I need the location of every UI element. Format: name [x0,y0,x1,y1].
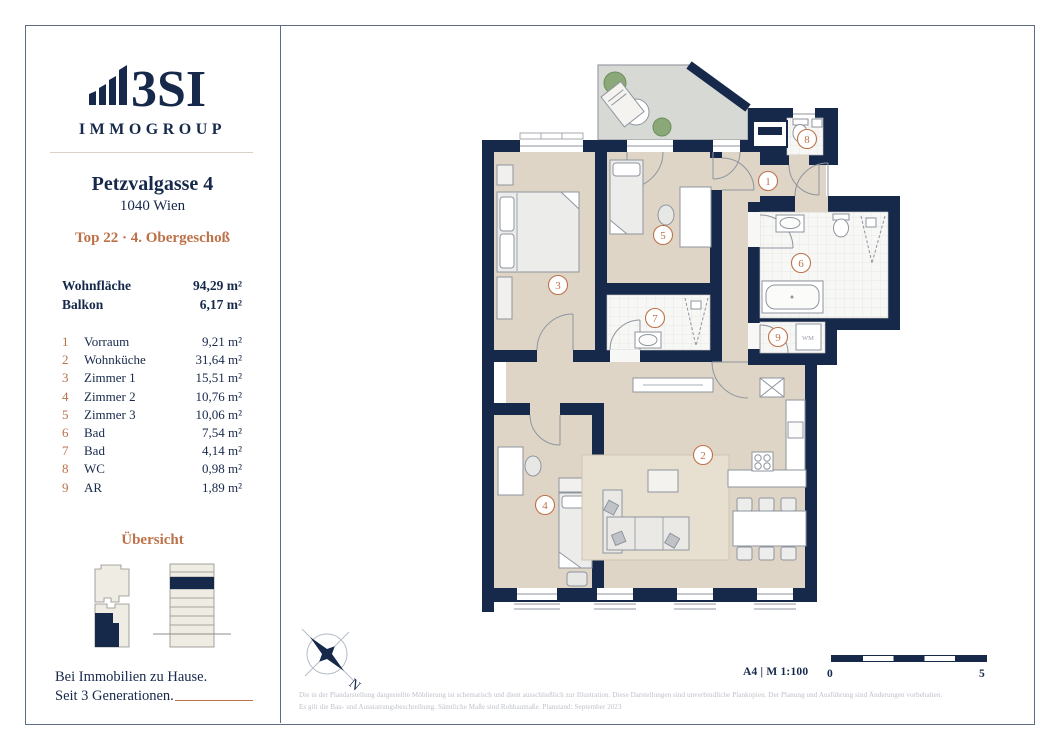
svg-text:1: 1 [765,176,771,188]
room-row: 4Zimmer 210,76 m² [62,388,242,406]
room-row: 1Vorraum9,21 m² [62,333,242,351]
plan-sheet: 3SI IMMOGROUP Petzvalgasse 4 1040 Wien T… [0,0,1060,750]
area-summary: Wohnfläche 94,29 m² Balkon 6,17 m² [62,276,242,314]
room-row: 5Zimmer 310,06 m² [62,406,242,424]
room-row: 8WC0,98 m² [62,460,242,478]
toilet [833,214,849,237]
disclaimer-line: Die in der Plandarstellung dargestellte … [299,690,1035,702]
scale-zero-label: 0 [827,668,833,680]
room-badge: 9 [769,328,788,347]
unit-title: Top 22 · 4. Obergeschoß [25,230,280,247]
balcony [598,65,748,140]
area-value: 6,17 m² [200,295,242,314]
bathtub [762,281,823,313]
tagline-rule [175,700,253,701]
area-value: 94,29 m² [193,276,242,295]
room-badge: 2 [694,446,713,465]
disclaimer-line: Es gilt die Bau- und Ausstattungsbeschre… [299,702,1035,714]
bed-single [610,160,643,234]
desk [680,187,711,247]
logo-subtitle: IMMOGROUP [25,121,280,139]
area-row-balkon: Balkon 6,17 m² [62,295,242,314]
room-badge: 7 [646,309,665,328]
desk [498,447,523,495]
logo-3si-icon: 3SI [53,53,253,115]
svg-text:6: 6 [798,258,804,270]
washing-machine: WM [796,324,821,350]
wardrobe [497,277,512,319]
scale-five-label: 5 [979,668,985,680]
room-row: 7Bad4,14 m² [62,442,242,460]
room-badge: 6 [792,254,811,273]
room-row: 3Zimmer 115,51 m² [62,369,242,387]
shower-head [866,218,876,227]
room-badge: 5 [654,226,673,245]
brand-logo: 3SI IMMOGROUP [25,53,280,139]
dining-table [733,511,806,546]
sidebar-divider [280,25,281,723]
chair [525,456,541,476]
balcony-door-vorraum [713,140,740,152]
svg-text:3: 3 [555,280,561,292]
coffee-table [648,470,678,492]
logo-text: 3SI [131,61,206,115]
room-row: 9AR1,89 m² [62,479,242,497]
washbasin [635,332,661,348]
svg-text:2: 2 [700,450,706,462]
sink [788,422,803,438]
room-row: 6Bad7,54 m² [62,424,242,442]
svg-text:WM: WM [802,335,814,342]
mini-floorplate [95,565,129,647]
window-zimmer1 [520,133,583,152]
scale-note: A4 | M 1:100 [743,666,808,678]
svg-text:5: 5 [660,230,666,242]
area-label: Wohnfläche [62,276,131,295]
washbasin [776,215,804,232]
address-street: Petzvalgasse 4 [25,173,280,196]
svg-text:7: 7 [652,313,658,325]
dining-set [733,498,806,560]
unit-floor-marker [170,577,214,589]
cistern [812,119,822,127]
svg-text:9: 9 [775,332,781,344]
address-city: 1040 Wien [25,198,280,215]
chair [658,205,674,225]
room-badge: 1 [759,172,778,191]
mini-elevation [153,564,231,647]
area-row-wohnflaeche: Wohnfläche 94,29 m² [62,276,242,295]
room-badge: 4 [536,496,555,515]
bench [567,572,587,586]
disclaimer: Die in der Plandarstellung dargestellte … [299,690,1035,713]
room-row: 2Wohnküche31,64 m² [62,351,242,369]
overview-title: Übersicht [25,532,280,549]
window-wc [793,108,815,120]
overview-diagrams [45,555,260,660]
entrance-door [753,121,787,147]
room-list: 1Vorraum9,21 m² 2Wohnküche31,64 m² 3Zimm… [62,333,242,497]
scale-bar [831,655,987,662]
sidebar-rule [50,152,253,153]
svg-text:4: 4 [542,500,548,512]
plant-icon [653,118,671,136]
shower-head [691,301,701,309]
sidebar: 3SI IMMOGROUP Petzvalgasse 4 1040 Wien T… [25,25,280,723]
room-badge: 3 [549,276,568,295]
counter [728,470,806,487]
floor-plan: WM [475,55,930,625]
svg-text:8: 8 [804,134,810,146]
room-badge: 8 [798,130,817,149]
balcony-door-zimmer3 [627,140,673,152]
area-label: Balkon [62,295,103,314]
